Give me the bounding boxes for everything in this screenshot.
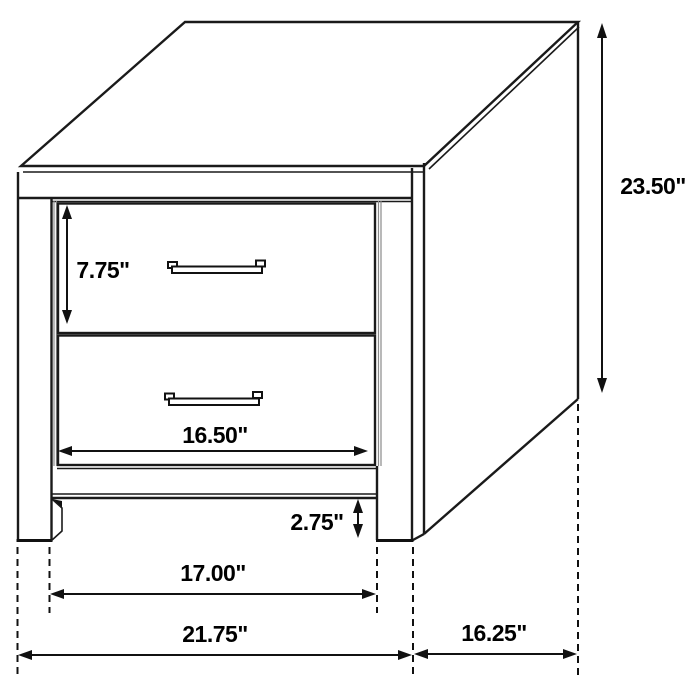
dimension-label: 23.50" xyxy=(620,173,685,199)
arrowhead-left-icon xyxy=(414,649,428,659)
top-panel-surface xyxy=(21,22,578,166)
dimension-base-clearance: 2.75" xyxy=(290,499,363,538)
top-panel-thickness-edge xyxy=(429,27,579,169)
arrowhead-up-icon xyxy=(597,23,607,38)
arrowhead-right-icon xyxy=(563,649,577,659)
dimension-label: 17.00" xyxy=(180,560,245,586)
arrowhead-right-icon xyxy=(398,650,412,660)
dimension-label: 21.75" xyxy=(182,621,247,647)
dimension-overall-width: 21.75" xyxy=(18,621,412,660)
handle-right-post xyxy=(253,392,262,398)
arrowhead-down-icon xyxy=(597,378,607,393)
handle-bar xyxy=(172,267,262,274)
arrowhead-left-icon xyxy=(50,589,64,599)
dimension-leg-span: 17.00" xyxy=(50,560,376,599)
nightstand-dimension-diagram: 7.75" 16.50" 23.50" 2.75" 17.00" 21.75" xyxy=(0,0,700,700)
dimension-label: 2.75" xyxy=(290,509,343,535)
right-leg-bottom-corner-edge xyxy=(413,534,424,540)
arrowhead-up-icon xyxy=(353,499,363,513)
arrowhead-left-icon xyxy=(18,650,32,660)
dimension-label: 16.50" xyxy=(182,422,247,448)
dimension-overall-height: 23.50" xyxy=(597,23,686,393)
side-panel-bottom-edge xyxy=(424,399,578,534)
dimension-overall-depth: 16.25" xyxy=(414,620,577,659)
handle-bar xyxy=(169,399,259,406)
diagram-canvas: 7.75" 16.50" 23.50" 2.75" 17.00" 21.75" xyxy=(0,0,700,700)
arrowhead-right-icon xyxy=(362,589,376,599)
dimension-label: 7.75" xyxy=(76,257,129,283)
arrowhead-down-icon xyxy=(353,524,363,538)
dimension-label: 16.25" xyxy=(461,620,526,646)
